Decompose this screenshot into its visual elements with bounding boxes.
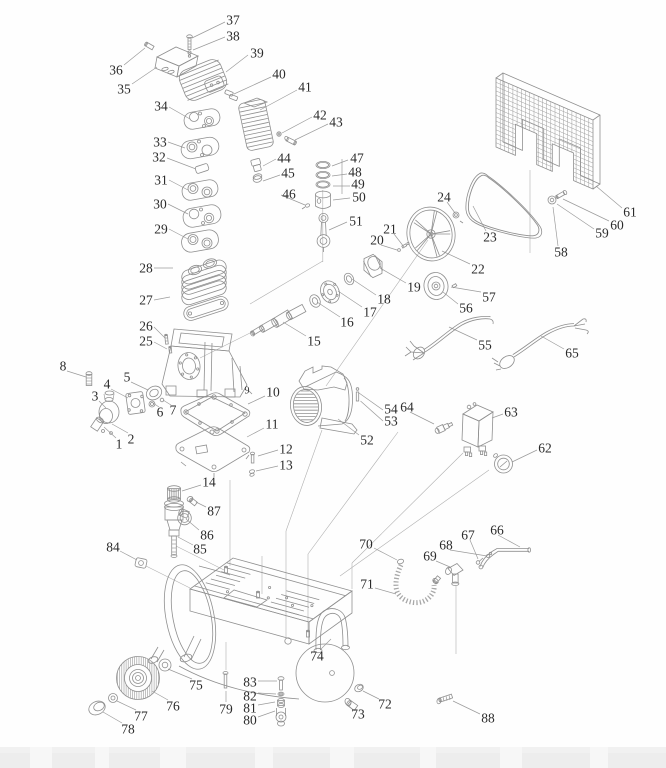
svg-text:52: 52 [360,433,374,448]
svg-text:55: 55 [478,338,492,353]
svg-text:54: 54 [384,402,398,417]
svg-text:57: 57 [482,290,496,305]
svg-text:61: 61 [623,205,637,220]
svg-text:59: 59 [595,226,609,241]
svg-text:34: 34 [154,99,168,114]
svg-text:17: 17 [363,305,377,320]
svg-text:78: 78 [121,722,135,737]
svg-text:82: 82 [243,689,257,704]
svg-text:37: 37 [226,13,240,28]
svg-text:29: 29 [154,222,168,237]
svg-text:77: 77 [134,709,148,724]
svg-text:31: 31 [154,173,168,188]
svg-text:14: 14 [202,475,216,490]
svg-text:79: 79 [219,702,233,717]
svg-text:22: 22 [471,262,485,277]
svg-text:83: 83 [243,675,257,690]
svg-text:72: 72 [378,697,392,712]
svg-text:32: 32 [152,150,166,165]
svg-text:20: 20 [370,233,384,248]
svg-text:66: 66 [490,523,504,538]
svg-text:40: 40 [272,67,286,82]
svg-text:44: 44 [277,151,291,166]
svg-text:63: 63 [504,405,518,420]
svg-text:11: 11 [266,417,279,432]
svg-text:60: 60 [610,218,624,233]
svg-text:6: 6 [157,405,164,420]
svg-text:10: 10 [266,385,280,400]
svg-text:74: 74 [310,649,324,664]
svg-text:76: 76 [166,699,180,714]
svg-text:47: 47 [350,151,364,166]
svg-text:18: 18 [377,292,391,307]
svg-text:8: 8 [60,359,67,374]
svg-text:62: 62 [538,441,552,456]
svg-text:1: 1 [116,437,123,452]
svg-text:23: 23 [483,230,497,245]
svg-text:16: 16 [340,315,354,330]
svg-text:68: 68 [439,538,453,553]
svg-text:25: 25 [139,334,153,349]
svg-text:15: 15 [307,334,321,349]
svg-text:75: 75 [189,678,203,693]
svg-text:70: 70 [359,537,373,552]
svg-text:26: 26 [139,319,153,334]
svg-text:9: 9 [245,386,250,397]
svg-text:42: 42 [313,108,327,123]
svg-text:85: 85 [193,542,207,557]
svg-text:36: 36 [109,63,123,78]
svg-text:2: 2 [128,432,135,447]
svg-text:45: 45 [281,166,295,181]
svg-text:33: 33 [153,135,167,150]
svg-text:30: 30 [153,197,167,212]
svg-text:56: 56 [459,301,473,316]
svg-text:5: 5 [124,370,131,385]
svg-text:35: 35 [117,82,131,97]
svg-text:69: 69 [423,549,437,564]
svg-text:58: 58 [554,245,568,260]
svg-text:88: 88 [481,711,495,726]
svg-text:21: 21 [383,222,397,237]
svg-text:73: 73 [351,707,365,722]
svg-text:51: 51 [349,214,363,229]
svg-text:43: 43 [329,115,343,130]
svg-text:28: 28 [139,261,153,276]
svg-text:7: 7 [170,403,177,418]
svg-text:4: 4 [104,377,111,392]
svg-text:46: 46 [282,187,296,202]
svg-text:3: 3 [92,389,99,404]
svg-text:84: 84 [106,540,120,555]
svg-text:39: 39 [250,46,264,61]
svg-text:24: 24 [437,190,451,205]
svg-text:19: 19 [407,280,421,295]
svg-text:71: 71 [360,577,374,592]
svg-text:12: 12 [279,442,293,457]
svg-text:65: 65 [565,346,579,361]
svg-text:64: 64 [400,400,414,415]
svg-text:27: 27 [139,293,153,308]
svg-text:86: 86 [200,528,214,543]
svg-text:50: 50 [352,190,366,205]
svg-text:41: 41 [298,80,312,95]
svg-text:87: 87 [207,504,221,519]
svg-text:13: 13 [279,458,293,473]
svg-text:38: 38 [226,29,240,44]
svg-text:67: 67 [461,528,475,543]
